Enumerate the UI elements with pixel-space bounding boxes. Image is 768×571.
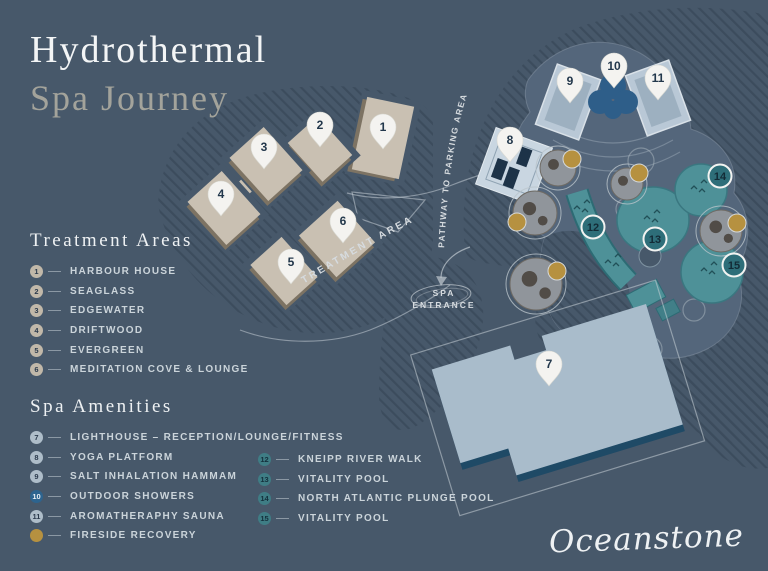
svg-text:1: 1 — [380, 120, 387, 134]
legend-item: FIRESIDE RECOVERY — [30, 526, 344, 546]
legend-number-marker: 5 — [30, 344, 43, 357]
hatch-area-southeast — [688, 356, 768, 469]
legend-number-marker: 12 — [258, 453, 271, 466]
legend-item: 12KNEIPP RIVER WALK — [258, 450, 495, 470]
legend-number-marker: 6 — [30, 363, 43, 376]
legend-dash — [48, 476, 61, 477]
legend-label: VITALITY POOL — [298, 513, 390, 524]
svg-text:3: 3 — [261, 140, 268, 154]
svg-text:4: 4 — [218, 187, 225, 201]
legend-label: MEDITATION COVE & LOUNGE — [70, 364, 249, 375]
legend-label: VITALITY POOL — [298, 474, 390, 485]
fireside-recovery-marker — [548, 262, 566, 280]
fire-pit — [536, 146, 581, 190]
svg-text:7: 7 — [546, 357, 553, 371]
legend-label: EDGEWATER — [70, 305, 145, 316]
svg-text:ENTRANCE: ENTRANCE — [412, 300, 475, 310]
svg-text:6: 6 — [340, 214, 347, 228]
legend-amenities-col2: 12KNEIPP RIVER WALK13VITALITY POOL14NORT… — [258, 450, 495, 528]
legend-number-marker: 4 — [30, 324, 43, 337]
legend-dash — [48, 350, 61, 351]
legend-number-marker: 14 — [258, 492, 271, 505]
svg-text:10: 10 — [607, 59, 621, 73]
legend-dash — [48, 535, 61, 536]
svg-text:11: 11 — [652, 71, 665, 85]
map-badge-14: 14 — [709, 165, 732, 188]
fireside-recovery-marker — [30, 529, 43, 542]
legend-dash — [276, 459, 289, 460]
legend-label: LIGHTHOUSE – RECEPTION/LOUNGE/FITNESS — [70, 432, 344, 443]
legend-dash — [48, 437, 61, 438]
legend-number-marker: 1 — [30, 265, 43, 278]
legend-label: AROMATHERAPHY SAUNA — [70, 511, 225, 522]
legend-item: 4DRIFTWOOD — [30, 321, 249, 341]
legend-number-marker: 2 — [30, 285, 43, 298]
legend-treatment-heading: Treatment Areas — [30, 230, 249, 252]
map-badge-15: 15 — [723, 254, 746, 277]
fire-pit — [508, 187, 561, 239]
fireside-recovery-marker — [728, 214, 746, 232]
legend-amenities-heading: Spa Amenities — [30, 396, 344, 418]
legend-number-marker: 7 — [30, 431, 43, 444]
map-badge-13: 13 — [644, 228, 667, 251]
fireside-recovery-marker — [563, 150, 581, 168]
legend-dash — [276, 479, 289, 480]
legend-item: 15VITALITY POOL — [258, 509, 495, 529]
legend-item: 6MEDITATION COVE & LOUNGE — [30, 360, 249, 380]
legend-dash — [48, 291, 61, 292]
legend-dash — [48, 496, 61, 497]
legend-label: SEAGLASS — [70, 286, 135, 297]
legend-dash — [48, 369, 61, 370]
legend-label: NORTH ATLANTIC PLUNGE POOL — [298, 493, 495, 504]
legend-label: SALT INHALATION HAMMAM — [70, 471, 237, 482]
title-line-2: Spa Journey — [30, 75, 267, 122]
legend-dash — [276, 498, 289, 499]
svg-text:SPA: SPA — [433, 288, 456, 298]
svg-text:2: 2 — [317, 118, 324, 132]
svg-text:14: 14 — [714, 171, 727, 183]
legend-item: 5EVERGREEN — [30, 340, 249, 360]
legend-dash — [48, 310, 61, 311]
spa-map-page: SPA ENTRANCE TREATMENT AREA PATHWAY TO P… — [0, 0, 768, 571]
legend-label: FIRESIDE RECOVERY — [70, 530, 197, 541]
svg-text:8: 8 — [507, 133, 514, 147]
legend-label: KNEIPP RIVER WALK — [298, 454, 423, 465]
page-title: Hydrothermal Spa Journey — [30, 26, 267, 122]
svg-text:9: 9 — [567, 74, 574, 88]
legend-treatment-list: 1HARBOUR HOUSE2SEAGLASS3EDGEWATER4DRIFTW… — [30, 262, 249, 380]
legend-number-marker: 3 — [30, 304, 43, 317]
legend-item: 7LIGHTHOUSE – RECEPTION/LOUNGE/FITNESS — [30, 428, 344, 448]
legend-item: 2SEAGLASS — [30, 282, 249, 302]
legend-item: 14NORTH ATLANTIC PLUNGE POOL — [258, 489, 495, 509]
legend-number-marker: 11 — [30, 510, 43, 523]
title-line-1: Hydrothermal — [30, 26, 267, 75]
legend-number-marker: 8 — [30, 451, 43, 464]
svg-text:5: 5 — [288, 255, 295, 269]
legend-number-marker: 15 — [258, 512, 271, 525]
legend-label: YOGA PLATFORM — [70, 452, 174, 463]
legend-treatment-areas: Treatment Areas 1HARBOUR HOUSE2SEAGLASS3… — [30, 230, 249, 380]
legend-dash — [48, 330, 61, 331]
oceanstone-logo: Oceanstone — [549, 518, 745, 561]
legend-label: EVERGREEN — [70, 345, 145, 356]
legend-label: DRIFTWOOD — [70, 325, 143, 336]
legend-dash — [48, 271, 61, 272]
legend-item: 3EDGEWATER — [30, 301, 249, 321]
legend-number-marker: 9 — [30, 470, 43, 483]
legend-item: 13VITALITY POOL — [258, 470, 495, 490]
legend-number-marker: 13 — [258, 473, 271, 486]
fire-pit — [696, 206, 746, 256]
fire-pit — [607, 164, 648, 204]
fire-pit — [506, 254, 566, 314]
legend-label: OUTDOOR SHOWERS — [70, 491, 195, 502]
map-badge-12: 12 — [582, 216, 605, 239]
legend-dash — [48, 457, 61, 458]
svg-text:13: 13 — [649, 234, 661, 246]
legend-number-marker: 10 — [30, 490, 43, 503]
legend-dash — [48, 516, 61, 517]
svg-text:15: 15 — [728, 260, 740, 272]
fireside-recovery-marker — [508, 213, 526, 231]
legend-dash — [276, 518, 289, 519]
fireside-recovery-marker — [630, 164, 648, 182]
legend-item: 1HARBOUR HOUSE — [30, 262, 249, 282]
legend-label: HARBOUR HOUSE — [70, 266, 176, 277]
svg-text:12: 12 — [587, 222, 599, 234]
